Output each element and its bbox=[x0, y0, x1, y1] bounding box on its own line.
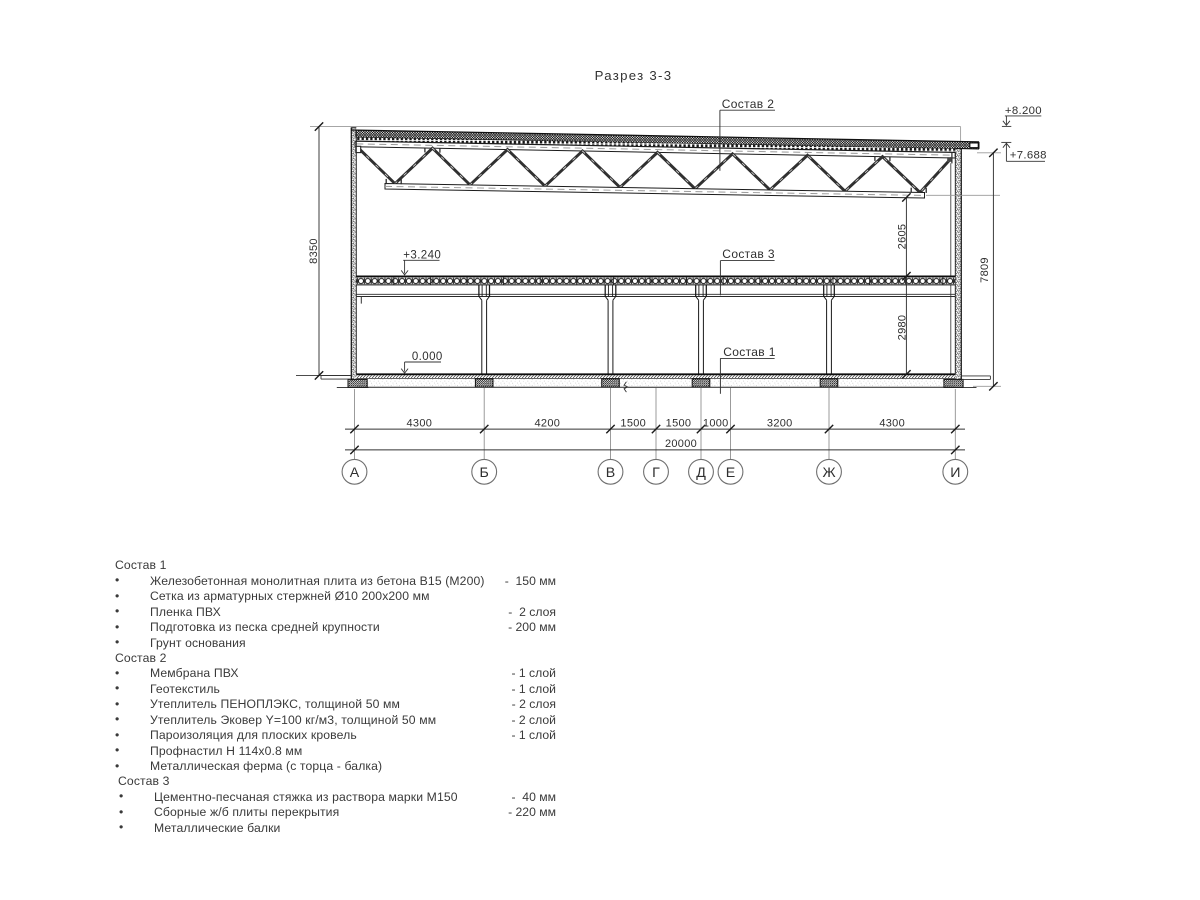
svg-text:3200: 3200 bbox=[767, 417, 793, 429]
svg-text:1000: 1000 bbox=[703, 417, 729, 429]
svg-text:Состав 3: Состав 3 bbox=[722, 247, 775, 261]
svg-text:2605: 2605 bbox=[897, 224, 909, 250]
svg-text:8350: 8350 bbox=[308, 238, 320, 264]
svg-text:0.000: 0.000 bbox=[412, 351, 443, 363]
svg-text:А: А bbox=[350, 465, 360, 481]
svg-text:Разрез 3-3: Разрез 3-3 bbox=[595, 68, 673, 83]
svg-text:2980: 2980 bbox=[897, 315, 909, 341]
svg-text:+8.200: +8.200 bbox=[1005, 105, 1042, 117]
svg-text:И: И bbox=[950, 465, 960, 481]
svg-text:4200: 4200 bbox=[535, 417, 561, 429]
svg-text:Состав 1: Состав 1 bbox=[723, 345, 776, 359]
svg-text:Состав 2: Состав 2 bbox=[722, 97, 775, 111]
svg-text:Б: Б bbox=[480, 465, 489, 481]
svg-text:Д: Д bbox=[696, 465, 706, 481]
svg-text:1500: 1500 bbox=[666, 417, 692, 429]
svg-text:Е: Е bbox=[726, 465, 735, 481]
svg-text:Ж: Ж bbox=[822, 465, 835, 481]
svg-text:+7.688: +7.688 bbox=[1010, 150, 1047, 162]
svg-text:4300: 4300 bbox=[407, 417, 433, 429]
svg-text:20000: 20000 bbox=[665, 438, 697, 450]
svg-text:4300: 4300 bbox=[879, 417, 905, 429]
svg-text:1500: 1500 bbox=[620, 417, 646, 429]
svg-text:7809: 7809 bbox=[979, 257, 991, 283]
svg-text:В: В bbox=[606, 465, 615, 481]
svg-text:+3.240: +3.240 bbox=[403, 249, 441, 261]
svg-text:Г: Г bbox=[652, 465, 660, 481]
